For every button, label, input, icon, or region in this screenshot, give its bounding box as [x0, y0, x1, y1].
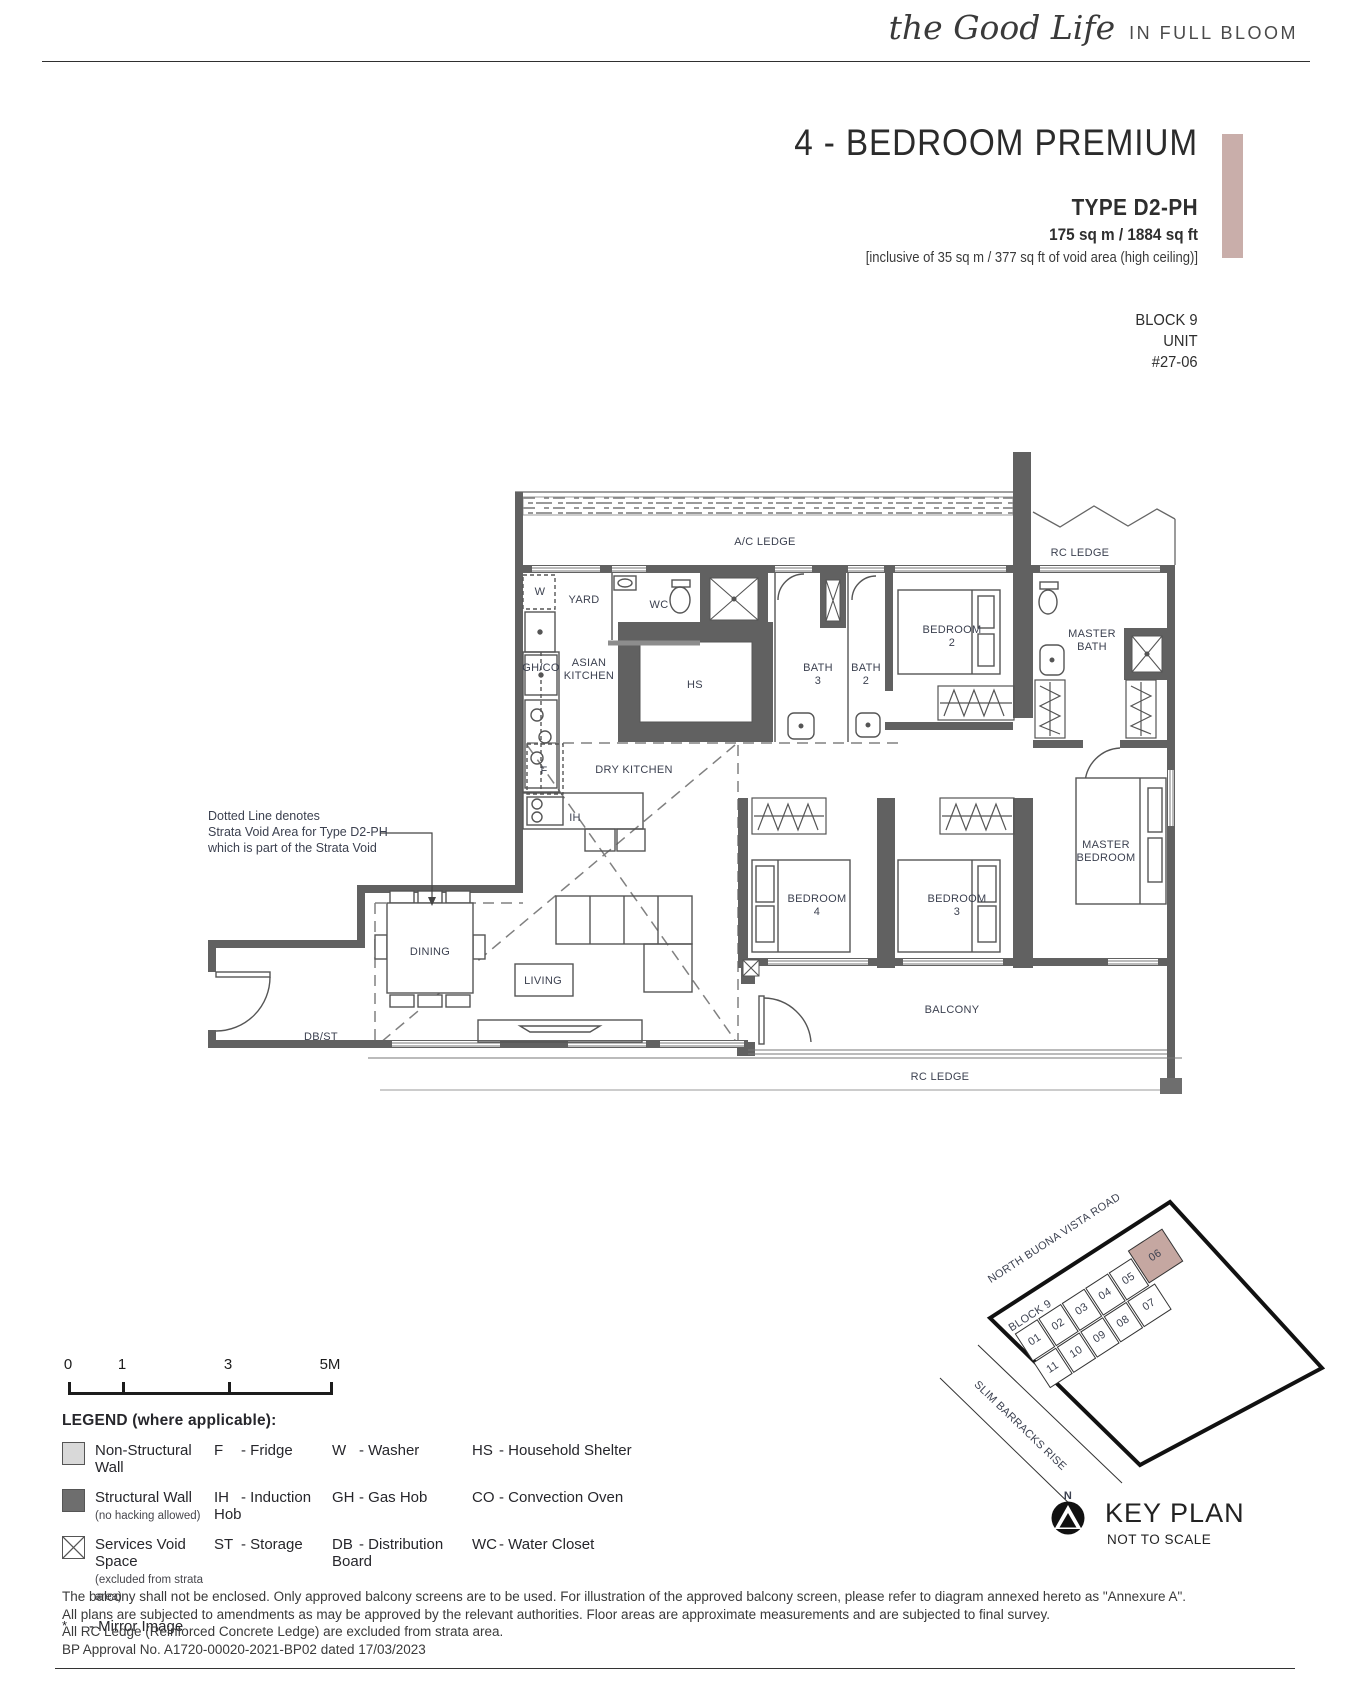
legend-item-non-structural-wall: Non-Structural Wall — [62, 1442, 214, 1476]
svg-text:Strata Void Area for Type D2-P: Strata Void Area for Type D2-PH — [208, 825, 388, 839]
title-block: 4 - BEDROOM PREMIUM TYPE D2-PH 175 sq m … — [514, 122, 1198, 266]
legend-item-washer: W- Washer — [332, 1442, 472, 1476]
scale-label-3: 3 — [224, 1356, 232, 1373]
legend-item-convection-oven: CO- Convection Oven — [472, 1489, 672, 1523]
scale-label-0: 0 — [64, 1356, 72, 1373]
footer-notes: The balcony shall not be enclosed. Only … — [62, 1588, 1307, 1658]
header-rule — [42, 61, 1310, 62]
area-note: [inclusive of 35 sq m / 377 sq ft of voi… — [514, 250, 1198, 266]
svg-text:LIVING: LIVING — [524, 975, 562, 987]
note-line-3: All RC Ledge (Reinforced Concrete Ledge)… — [62, 1623, 1307, 1641]
scale-label-1: 1 — [118, 1356, 126, 1373]
svg-text:RC LEDGE: RC LEDGE — [911, 1071, 970, 1083]
strata-void-annotation: Dotted Line denotesStrata Void Area for … — [207, 809, 388, 855]
svg-text:BALCONY: BALCONY — [925, 1004, 980, 1016]
svg-text:DRY KITCHEN: DRY KITCHEN — [595, 764, 672, 776]
svg-text:Dotted Line denotes: Dotted Line denotes — [208, 809, 320, 823]
svg-text:BATH3: BATH3 — [803, 662, 833, 687]
svg-text:IH: IH — [569, 812, 581, 824]
legend-item-household-shelter: HS- Household Shelter — [472, 1442, 672, 1476]
svg-text:DB/ST: DB/ST — [304, 1031, 338, 1043]
note-line-1: The balcony shall not be enclosed. Only … — [62, 1588, 1307, 1606]
scale-bar-line — [68, 1382, 333, 1395]
accent-bar — [1222, 134, 1243, 258]
scale-bar: 0 1 3 5M — [58, 1356, 348, 1398]
block-unit-group: BLOCK 9 UNIT #27-06 — [1136, 310, 1198, 373]
balcony-and-rc-ledge-lines — [368, 1050, 1182, 1090]
legend-item-induction-hob: IH- Induction Hob — [214, 1489, 332, 1523]
legend-item-structural-wall: Structural Wall (no hacking allowed) — [62, 1489, 214, 1523]
unit-label: UNIT — [1136, 331, 1198, 352]
unit-type: TYPE D2-PH — [514, 194, 1198, 221]
legend-item-gas-hob: GH- Gas Hob — [332, 1489, 472, 1523]
unit-number: #27-06 — [1136, 352, 1198, 373]
services-void-swatch — [62, 1536, 85, 1559]
svg-text:GH/CO: GH/CO — [522, 662, 560, 674]
svg-text:WC: WC — [650, 599, 669, 611]
block-label: BLOCK 9 — [1136, 310, 1198, 331]
svg-text:W: W — [535, 586, 546, 598]
note-line-4: BP Approval No. A1720-00020-2021-BP02 da… — [62, 1641, 1307, 1659]
logo-script-text: the Good Life — [889, 8, 1115, 47]
non-structural-wall-swatch — [62, 1442, 85, 1465]
north-label: N — [1064, 1490, 1072, 1502]
footer-rule — [55, 1668, 1295, 1669]
svg-text:MASTERBATH: MASTERBATH — [1068, 628, 1116, 653]
svg-text:BATH2: BATH2 — [851, 662, 881, 687]
key-plan-subtitle: NOT TO SCALE — [1107, 1532, 1211, 1547]
logo-tagline: IN FULL BLOOM — [1129, 23, 1298, 44]
legend-item-fridge: F- Fridge — [214, 1442, 332, 1476]
note-line-2: All plans are subjected to amendments as… — [62, 1606, 1307, 1624]
svg-text:DINING: DINING — [410, 946, 450, 958]
windows — [392, 566, 1174, 1047]
svg-text:MASTERBEDROOM: MASTERBEDROOM — [1077, 839, 1136, 864]
structural-walls — [208, 452, 1182, 1094]
svg-text:YARD: YARD — [569, 594, 600, 606]
svg-text:RC LEDGE: RC LEDGE — [1051, 547, 1110, 559]
north-compass-icon — [1052, 1502, 1085, 1535]
page-title: 4 - BEDROOM PREMIUM — [514, 122, 1198, 164]
legend-heading: LEGEND (where applicable): — [62, 1412, 722, 1430]
key-plan-title: KEY PLAN — [1105, 1498, 1245, 1529]
svg-text:A/C LEDGE: A/C LEDGE — [734, 536, 795, 548]
svg-text:F: F — [540, 765, 547, 777]
svg-text:SLIM BARRACKS RISE: SLIM BARRACKS RISE — [972, 1379, 1069, 1473]
svg-text:ASIANKITCHEN: ASIANKITCHEN — [564, 657, 614, 682]
rc-ledge-break-line — [1033, 506, 1175, 527]
svg-text:N: N — [1064, 1490, 1072, 1502]
svg-text:which is part of the Strata Vo: which is part of the Strata Void — [207, 841, 377, 855]
unit-area: 175 sq m / 1884 sq ft — [514, 225, 1198, 245]
svg-text:NORTH BUONA VISTA ROAD: NORTH BUONA VISTA ROAD — [986, 1191, 1123, 1286]
structural-wall-swatch — [62, 1489, 85, 1512]
scale-label-5m: 5M — [320, 1356, 341, 1373]
floor-plan: Dotted Line denotesStrata Void Area for … — [195, 445, 1185, 1095]
floorplan-brochure-page: the Good Life IN FULL BLOOM 4 - BEDROOM … — [0, 0, 1353, 1691]
void-x-icon — [63, 1537, 84, 1558]
brand-logo: the Good Life IN FULL BLOOM — [889, 8, 1298, 47]
svg-text:HS: HS — [687, 679, 703, 691]
